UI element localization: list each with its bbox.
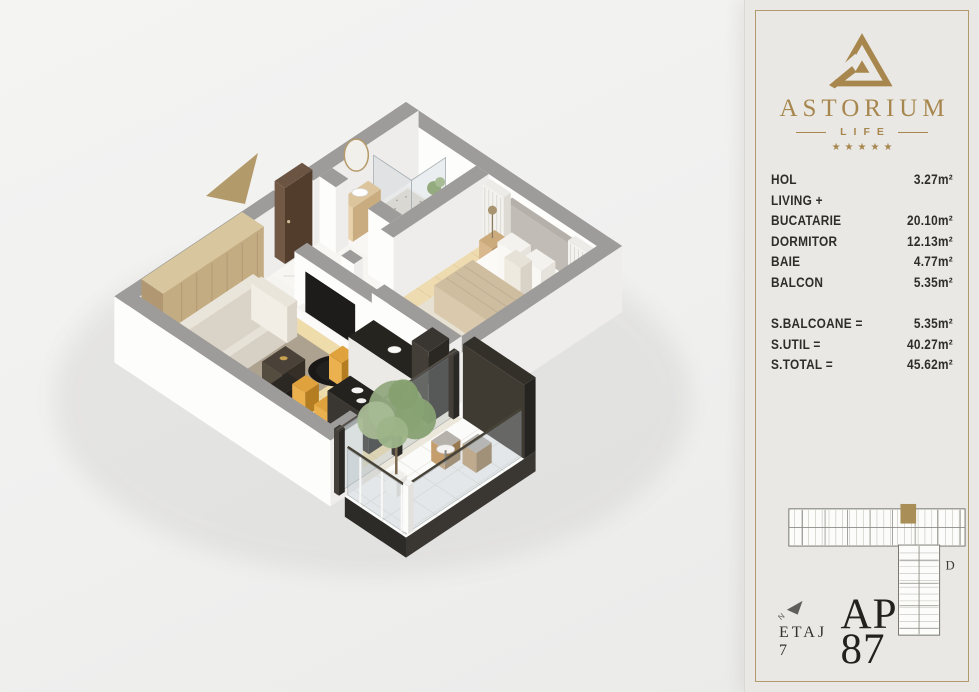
building-section-label: D [945,559,954,573]
room-value: 20.10m² [907,211,953,232]
brand-logo: ASTORIUM LIFE ★★★★★ [771,32,953,153]
room-row: BALCON 5.35m² [771,273,953,294]
total-value: 45.62m² [907,355,953,376]
room-label: HOL [771,170,797,191]
total-value: 5.35m² [914,314,953,335]
info-panel: ASTORIUM LIFE ★★★★★ HOL 3.27m² LIVING + [744,0,979,692]
brand-name: ASTORIUM [771,95,953,123]
room-label: LIVING + [771,191,823,212]
room-row: HOL 3.27m² [771,170,953,191]
north-arrow-icon [206,153,258,204]
room-label: DORMITOR [771,232,837,253]
room-value: 12.13m² [907,232,953,253]
room-label: BAIE [771,252,800,273]
brand-logo-icon [829,32,895,92]
room-label: BALCON [771,273,823,294]
total-value: 40.27m² [907,335,953,356]
total-row: S.TOTAL = 45.62m² [771,355,953,376]
tagline-rule-right [898,132,928,133]
total-label: S.TOTAL = [771,355,833,376]
totals-list: S.BALCOANE = 5.35m² S.UTIL = 40.27m² S.T… [771,314,953,376]
apartment-number: AP 87 [841,597,945,668]
room-value: 3.27m² [914,170,953,191]
floor-label: ETAJ 7 [779,624,841,667]
brand-stars: ★★★★★ [771,142,953,153]
room-list: HOL 3.27m² LIVING + BUCATARIE 20.10m² DO… [771,170,953,293]
room-row: BUCATARIE 20.10m² [771,211,953,232]
brand-tagline: LIFE [833,126,891,138]
room-row: DORMITOR 12.13m² [771,232,953,253]
brand-tagline-row: LIFE [771,126,953,138]
apartment-3d-floorplan [0,0,745,692]
room-value: 5.35m² [914,273,953,294]
room-value: 4.77m² [914,252,953,273]
total-label: S.UTIL = [771,335,821,356]
room-label: BUCATARIE [771,211,841,232]
total-label: S.BALCOANE = [771,314,863,335]
page: ASTORIUM LIFE ★★★★★ HOL 3.27m² LIVING + [0,0,979,692]
total-row: S.UTIL = 40.27m² [771,335,953,356]
floorplan-canvas [0,0,745,692]
tagline-rule-left [796,132,826,133]
total-row: S.BALCOANE = 5.35m² [771,314,953,335]
panel-footer: ETAJ 7 AP 87 [779,597,945,668]
room-row: LIVING + [771,191,953,212]
room-row: BAIE 4.77m² [771,252,953,273]
